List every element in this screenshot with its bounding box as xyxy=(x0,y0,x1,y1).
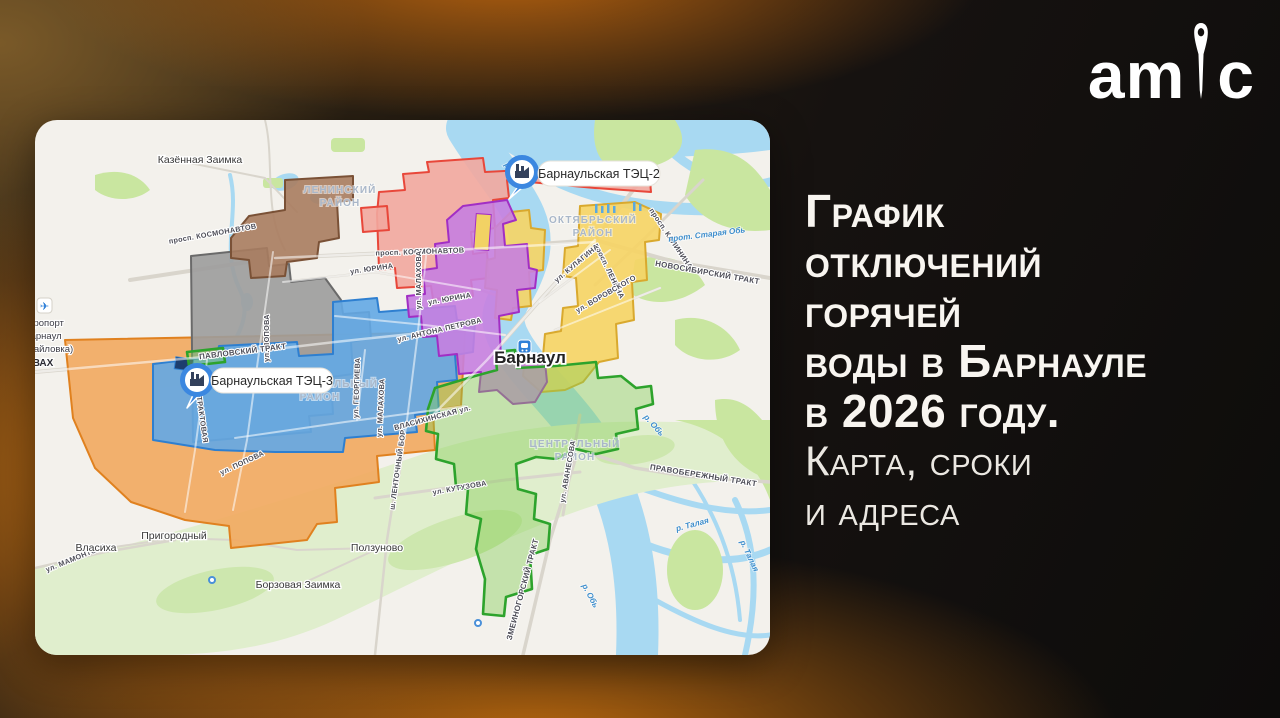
station-icon xyxy=(522,350,524,352)
headline-title-line: График xyxy=(805,186,1255,236)
headline-title-line: в 2026 году. xyxy=(805,386,1255,436)
headline-title-line: горячей xyxy=(805,286,1255,336)
settlement-label: Пригородный xyxy=(141,530,207,542)
settlement-label: Власиха xyxy=(75,542,116,554)
headline-subtitle-line: Карта, сроки xyxy=(805,436,1255,486)
riverbank-green xyxy=(675,318,740,360)
amic-logo: am c xyxy=(1088,22,1255,101)
poi-dot xyxy=(475,620,481,626)
street-label: ул. ПОПОВА xyxy=(262,314,271,362)
airport-label: (Михайловка) xyxy=(35,344,73,355)
headline: График отключений горячей воды в Барнаул… xyxy=(805,186,1255,536)
street-label: ул. МАЛАХОВА xyxy=(414,250,423,309)
water-label: р. Обь xyxy=(580,581,601,610)
airplane-icon: ✈ xyxy=(40,301,49,313)
headline-title-line: воды в Барнауле xyxy=(805,336,1255,386)
green-patch xyxy=(95,172,150,199)
headline-title-line: отключений xyxy=(805,236,1255,286)
airport-label: ВАХ xyxy=(35,358,54,369)
settlement-label: Борзовая Заимка xyxy=(256,579,341,591)
settlement-label: Казённая Заимка xyxy=(158,154,243,166)
map-canvas: ЛЕНИНСКИЙРАЙОН ОКТЯБРЬСКИЙРАЙОН ИНДУСТРИ… xyxy=(35,120,770,655)
settlement-label: Ползуново xyxy=(351,542,403,554)
airport-label: Аэропорт xyxy=(35,318,65,329)
poi-dot xyxy=(209,577,215,583)
logo-text-left: am xyxy=(1088,50,1185,101)
zone-yellow-inset xyxy=(474,214,491,251)
airport-label: Барнаул xyxy=(35,331,62,342)
marker-label: Барнаульская ТЭЦ-2 xyxy=(538,167,660,181)
water-label: прот. Старая Обь xyxy=(668,224,746,243)
logo-text-right: c xyxy=(1217,50,1255,101)
headline-subtitle-line: и адреса xyxy=(805,486,1255,536)
riverbank-green xyxy=(685,149,770,231)
map-card: ЛЕНИНСКИЙРАЙОН ОКТЯБРЬСКИЙРАЙОН ИНДУСТРИ… xyxy=(35,120,770,655)
riverbank-green xyxy=(667,530,723,610)
station-icon xyxy=(521,343,528,348)
station-icon xyxy=(526,350,528,352)
park xyxy=(331,138,365,152)
marker-label: Барнаульская ТЭЦ-3 xyxy=(211,374,333,388)
zone-red-shape xyxy=(361,206,389,232)
needle-icon xyxy=(1190,22,1212,100)
